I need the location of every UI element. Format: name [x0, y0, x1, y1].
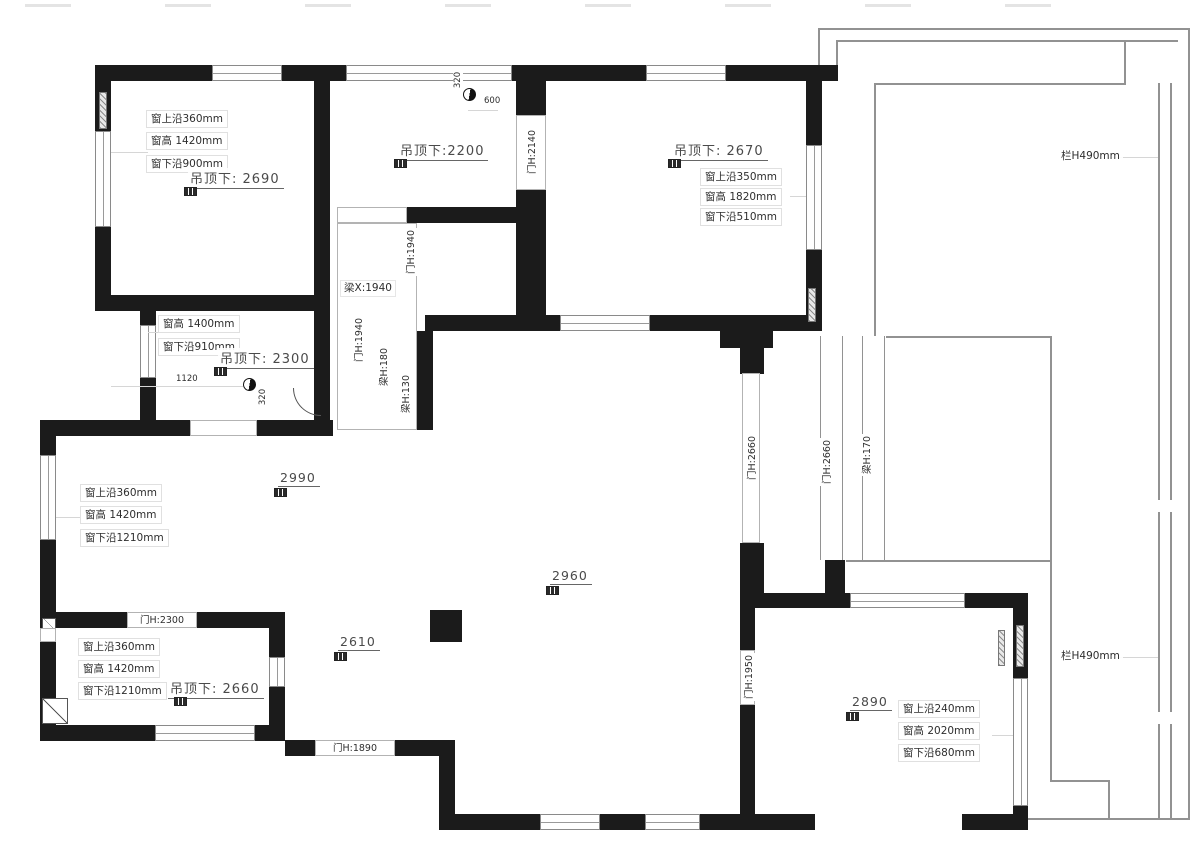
wall-hatch: [808, 288, 816, 322]
floor-plan-canvas: 窗上沿360mm 窗高 1420mm 窗下沿900mm 吊顶下: 2690 32…: [0, 0, 1200, 860]
wall-fixture: [40, 628, 56, 642]
balcony-railing: [1158, 724, 1160, 818]
balcony-outline: [818, 28, 1190, 30]
railing-height-label: 栏H490mm: [1058, 649, 1123, 664]
window-height-label: 窗高 1420mm: [78, 660, 160, 678]
sliding-door-track: [842, 336, 843, 560]
balcony-outline: [818, 28, 820, 66]
balcony-inner-edge: [874, 83, 1126, 85]
corner-fixture: [42, 698, 68, 724]
wall-segment: [40, 436, 56, 455]
balcony-railing: [1170, 83, 1172, 500]
wall-hatch: [99, 92, 107, 129]
wall-segment: [825, 560, 845, 593]
column: [430, 610, 462, 642]
dim-label: 600: [484, 96, 500, 106]
leader-line: [56, 517, 80, 518]
wall-segment: [512, 65, 546, 81]
wall-segment: [962, 814, 1028, 830]
window-sill-label: 窗下沿510mm: [700, 208, 782, 226]
window: [40, 455, 56, 540]
balcony-inner-edge: [1050, 336, 1052, 782]
window: [806, 145, 822, 250]
wall-segment: [282, 65, 346, 81]
window: [850, 593, 965, 608]
window-top-label: 窗上沿360mm: [80, 484, 162, 502]
beam-label: 梁H:130: [398, 373, 412, 415]
wall-segment: [140, 378, 156, 420]
wall-segment: [546, 65, 646, 81]
window-top-label: 窗上沿360mm: [78, 638, 160, 656]
wall-segment: [740, 705, 755, 817]
door-opening: [190, 420, 257, 436]
window: [212, 65, 282, 81]
balcony-inner-edge: [874, 83, 876, 336]
ceiling-icon: [334, 652, 347, 661]
window-height-label: 窗高 1820mm: [700, 188, 782, 206]
top-artifact: [165, 4, 211, 7]
wall-segment: [720, 330, 773, 348]
downlight-symbol: [463, 88, 476, 101]
wall-segment: [285, 740, 315, 756]
door-opening: [337, 207, 407, 223]
ceiling-icon: [174, 697, 187, 706]
ceiling-icon: [274, 488, 287, 497]
ceiling-icon: [394, 159, 407, 168]
balcony-railing: [1158, 83, 1160, 500]
balcony-inner-edge: [1050, 780, 1110, 782]
window-top-label: 窗上沿350mm: [700, 168, 782, 186]
balcony-railing: [1170, 512, 1172, 712]
ceiling-height-label: 吊顶下: 2660: [168, 678, 264, 699]
wall-segment: [740, 348, 764, 374]
door-height-label: 门H:1890: [315, 740, 395, 756]
door-height-label: 门H:2140: [524, 128, 538, 176]
wall-segment: [40, 420, 190, 436]
leader-line: [790, 196, 806, 197]
dim-label: 320: [453, 72, 463, 88]
balcony-inner-edge: [846, 560, 1052, 562]
beam-label: 梁H:170: [859, 434, 873, 476]
leader-line: [992, 735, 1013, 736]
wall-segment: [600, 814, 645, 830]
wall-segment: [516, 190, 546, 315]
wall-segment: [806, 81, 822, 145]
door-height-label: 门H:2660: [819, 438, 833, 486]
balcony-outline: [836, 40, 838, 66]
ceiling-height-label: 2890: [850, 694, 892, 711]
ceiling-height-label: 吊顶下: 2690: [188, 168, 284, 189]
ceiling-icon: [846, 712, 859, 721]
top-artifact: [25, 4, 71, 7]
door-height-label: 门H:1940: [403, 228, 417, 276]
ceiling-height-label: 2610: [338, 634, 380, 651]
ceiling-height-label: 吊顶下: 2300: [218, 348, 314, 369]
balcony-inner-edge: [886, 336, 1052, 338]
window: [155, 725, 255, 741]
wall-segment: [257, 420, 333, 436]
dim-label: 320: [258, 389, 268, 405]
window: [269, 657, 285, 687]
wall-segment: [140, 311, 156, 325]
wall-segment: [255, 725, 285, 741]
wall-segment: [650, 315, 822, 331]
wall-segment: [740, 543, 764, 593]
door-height-label: 门H:2660: [744, 434, 758, 482]
wall-segment: [417, 331, 433, 430]
beam-label: 梁H:180: [376, 346, 390, 388]
wall-segment: [314, 81, 330, 295]
window: [645, 814, 700, 830]
ceiling-icon: [214, 367, 227, 376]
window-top-label: 窗上沿240mm: [898, 700, 980, 718]
ceiling-height-label: 2960: [550, 568, 592, 585]
dim-label: 1120: [176, 374, 198, 384]
wall-segment: [755, 593, 850, 608]
leader-line: [468, 110, 498, 111]
wall-hatch: [998, 630, 1005, 666]
balcony-outline: [1028, 818, 1190, 820]
wall-segment: [740, 593, 755, 650]
wall-segment: [95, 65, 212, 81]
top-artifact: [445, 4, 491, 7]
top-artifact: [305, 4, 351, 7]
ceiling-height-label: 吊顶下:2200: [398, 140, 488, 161]
door-height-label: 门H:1950: [741, 653, 755, 701]
window-top-label: 窗上沿360mm: [146, 110, 228, 128]
top-artifact: [585, 4, 631, 7]
wall-segment: [516, 81, 546, 115]
wall-segment: [740, 814, 815, 830]
railing-height-label: 栏H490mm: [1058, 149, 1123, 164]
top-artifact: [865, 4, 911, 7]
leader-line: [111, 386, 243, 387]
window-height-label: 窗高 1420mm: [80, 506, 162, 524]
window-sill-label: 窗下沿1210mm: [78, 682, 167, 700]
beam-label: 梁X:1940: [340, 280, 396, 297]
wall-hatch: [1016, 625, 1024, 667]
wall-segment: [95, 227, 111, 304]
door-height-label: 门H:1940: [351, 316, 365, 364]
window-height-label: 窗高 2020mm: [898, 722, 980, 740]
balcony-inner-edge: [1108, 780, 1110, 818]
window: [95, 131, 111, 227]
window: [646, 65, 726, 81]
ceiling-height-label: 2990: [278, 470, 320, 487]
window-sill-label: 窗下沿680mm: [898, 744, 980, 762]
window: [346, 65, 512, 81]
balcony-inner-edge: [1124, 40, 1126, 85]
window: [1013, 678, 1028, 806]
door-height-label: 门H:2300: [127, 612, 197, 628]
ceiling-icon: [546, 586, 559, 595]
wall-segment: [407, 207, 517, 223]
wall-segment: [455, 814, 540, 830]
door-swing-arc: [293, 388, 321, 416]
ceiling-height-label: 吊顶下: 2670: [672, 140, 768, 161]
balcony-outline: [1188, 28, 1190, 820]
window: [560, 315, 650, 331]
wall-segment: [40, 725, 155, 741]
ceiling-icon: [668, 159, 681, 168]
balcony-outline: [836, 40, 1178, 42]
window-height-label: 窗高 1400mm: [158, 315, 240, 333]
wall-segment: [56, 612, 127, 628]
balcony-railing: [1158, 512, 1160, 712]
window-height-label: 窗高 1420mm: [146, 132, 228, 150]
ceiling-icon: [184, 187, 197, 196]
wall-segment: [439, 740, 455, 830]
top-artifact: [725, 4, 771, 7]
sliding-door-track: [884, 336, 885, 560]
wall-segment: [726, 65, 838, 81]
leader-line: [111, 152, 148, 153]
balcony-railing: [1170, 724, 1172, 818]
window: [540, 814, 600, 830]
wall-segment: [425, 315, 560, 331]
downlight-symbol: [243, 378, 256, 391]
window-sill-label: 窗下沿1210mm: [80, 529, 169, 547]
top-artifact: [1005, 4, 1051, 7]
wall-segment: [95, 295, 330, 311]
